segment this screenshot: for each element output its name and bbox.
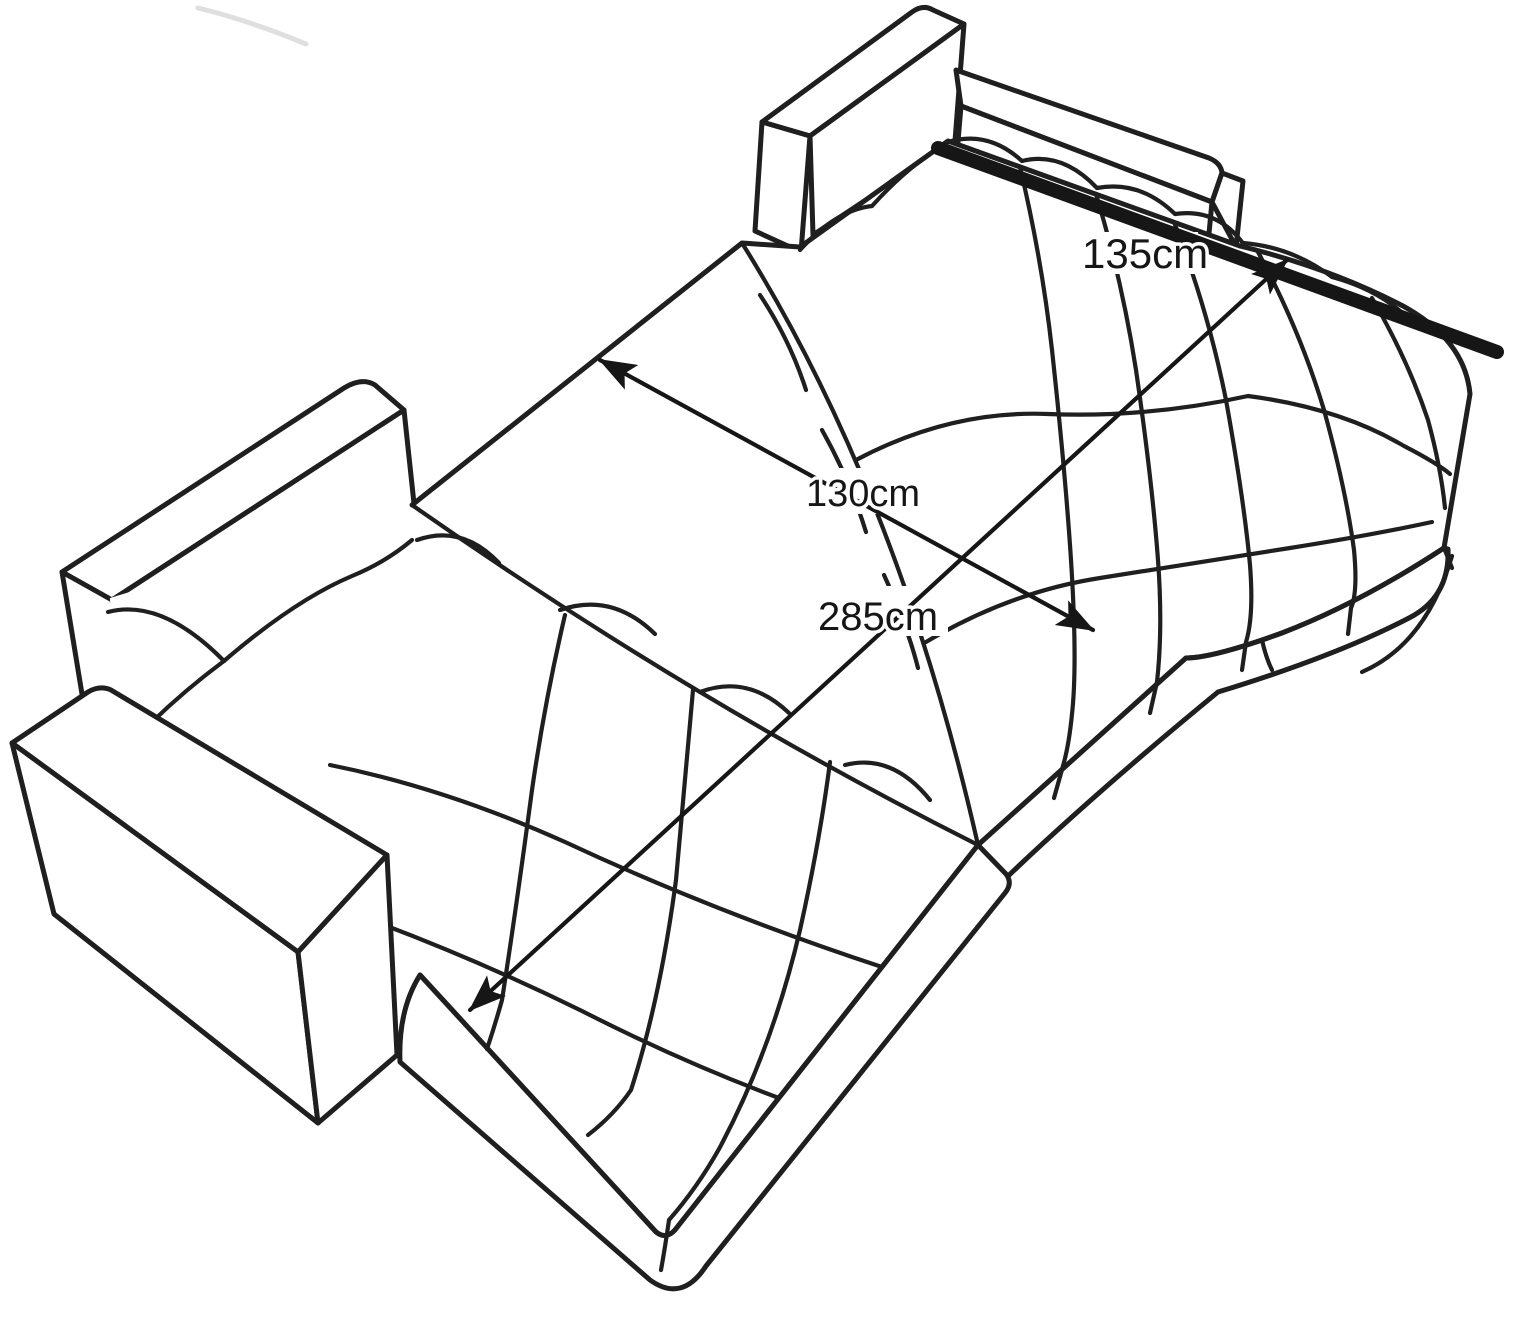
- right-armrest-side-face: [755, 122, 810, 252]
- dimension-label-130cm: 130cm: [806, 473, 920, 515]
- dimension-label-135cm: 135cm: [1082, 230, 1208, 277]
- diagram-canvas: 135cm 130cm 285cm: [0, 0, 1540, 1326]
- sofa-bed-dimension-diagram: 135cm 130cm 285cm: [0, 0, 1540, 1326]
- dimension-label-285cm: 285cm: [818, 595, 938, 639]
- scan-smudge: [198, 8, 306, 44]
- tuft-dimple: [1348, 608, 1351, 634]
